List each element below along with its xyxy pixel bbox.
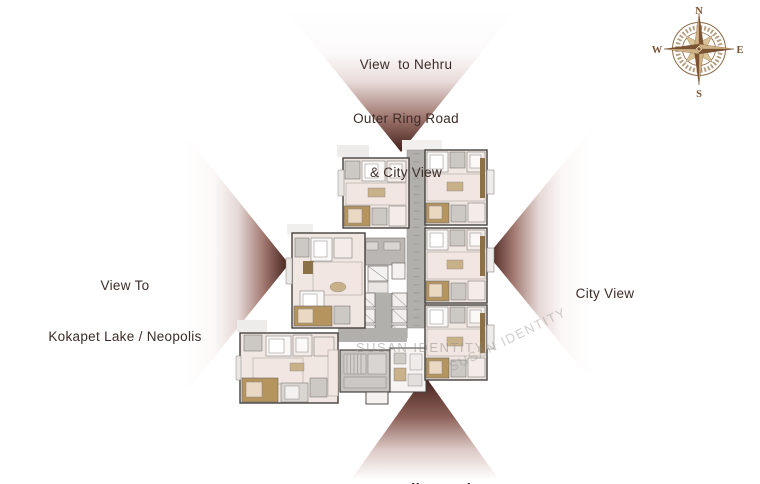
- unit-bottom-left: [236, 333, 338, 403]
- view-label-west: View To Kokapet Lake / Neopolis: [18, 243, 232, 379]
- view-label-north-line3: & City View: [316, 164, 496, 182]
- compass-letter-s: S: [696, 89, 702, 100]
- view-label-west-line2: Kokapet Lake / Neopolis: [18, 328, 232, 345]
- compass-rose: N E S W: [644, 0, 754, 104]
- view-label-east: City View: [540, 249, 670, 339]
- compass-letter-e: E: [736, 45, 743, 56]
- view-label-north-line1: View to Nehru: [316, 56, 496, 74]
- view-label-north-line2: Outer Ring Road: [316, 110, 496, 128]
- compass-letter-w: W: [652, 45, 663, 56]
- view-label-north: View to Nehru Outer Ring Road & City Vie…: [316, 20, 496, 218]
- floor-plan-page: View to Nehru Outer Ring Road & City Vie…: [0, 0, 760, 484]
- view-label-east-line1: City View: [540, 285, 670, 303]
- unit-mid-left: [286, 233, 365, 328]
- view-label-south: Gandipet Lake: [335, 445, 525, 484]
- compass-center-dot: [697, 47, 700, 50]
- view-label-west-line1: View To: [18, 277, 232, 294]
- stair-core: [340, 348, 426, 404]
- compass-letter-n: N: [695, 6, 703, 17]
